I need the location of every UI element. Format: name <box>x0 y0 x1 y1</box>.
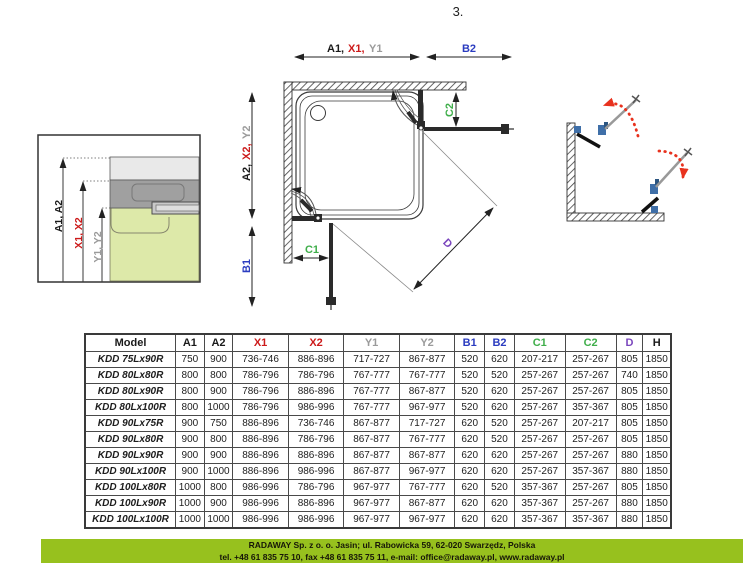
value-cell: 867-877 <box>399 384 455 400</box>
dimensions-table-container: ModelA1A2X1X2Y1Y2B1B2C1C2DHKDD 75Lx90R75… <box>84 333 672 529</box>
value-cell: 786-796 <box>233 384 289 400</box>
value-cell: 520 <box>485 416 515 432</box>
value-cell: 620 <box>455 416 485 432</box>
value-cell: 1850 <box>643 496 671 512</box>
value-cell: 257-267 <box>514 464 565 480</box>
value-cell: 1850 <box>643 352 671 368</box>
value-cell: 900 <box>176 448 205 464</box>
value-cell: 1000 <box>176 512 205 529</box>
value-cell: 880 <box>616 448 643 464</box>
detail-lightgray-layer <box>110 157 199 180</box>
value-cell: 800 <box>204 432 233 448</box>
value-cell: 886-896 <box>288 496 344 512</box>
value-cell: 257-267 <box>565 432 616 448</box>
value-cell: 257-267 <box>565 496 616 512</box>
value-cell: 886-896 <box>233 464 289 480</box>
value-cell: 1850 <box>643 448 671 464</box>
value-cell: 800 <box>204 480 233 496</box>
shower-tray <box>296 92 423 219</box>
value-cell: 900 <box>204 448 233 464</box>
value-cell: 520 <box>485 368 515 384</box>
table-row: KDD 80Lx100R8001000786-796986-996767-777… <box>85 400 671 416</box>
detail-label-a: A1, A2 <box>53 200 65 232</box>
model-cell: KDD 90Lx100R <box>85 464 176 480</box>
value-cell: 620 <box>485 400 515 416</box>
value-cell: 886-896 <box>288 448 344 464</box>
value-cell: 800 <box>176 400 205 416</box>
profile-detail-diagram: A1, A2 X1, X2 Y1, Y2 <box>38 135 200 282</box>
swing-bottom-wall <box>567 213 664 221</box>
value-cell: 867-877 <box>344 448 400 464</box>
value-cell: 1000 <box>204 512 233 529</box>
value-cell: 786-796 <box>288 368 344 384</box>
value-cell: 717-727 <box>344 352 400 368</box>
value-cell: 207-217 <box>565 416 616 432</box>
footer-address: RADAWAY Sp. z o. o. Jasin; ul. Rabowicka… <box>41 540 743 552</box>
value-cell: 886-896 <box>233 448 289 464</box>
value-cell: 1000 <box>176 496 205 512</box>
value-cell: 257-267 <box>514 416 565 432</box>
svg-text:Y2: Y2 <box>241 126 253 139</box>
model-cell: KDD 75Lx90R <box>85 352 176 368</box>
value-cell: 1850 <box>643 512 671 529</box>
swing-bottom-door <box>642 148 692 213</box>
table-row: KDD 90Lx90R900900886-896886-896867-87786… <box>85 448 671 464</box>
value-cell: 257-267 <box>514 368 565 384</box>
value-cell: 786-796 <box>233 400 289 416</box>
value-cell: 967-977 <box>399 400 455 416</box>
value-cell: 620 <box>455 432 485 448</box>
main-plan-diagram: D A1, X1, Y1 B2 A2, X2, Y2 B1 C2 C1 <box>241 43 514 310</box>
column-header-h: H <box>643 334 671 352</box>
dim-c1-label: C1 <box>305 244 319 256</box>
diag-ext-top <box>422 131 497 206</box>
column-header-d: D <box>616 334 643 352</box>
value-cell: 257-267 <box>514 432 565 448</box>
value-cell: 967-977 <box>344 496 400 512</box>
value-cell: 620 <box>455 480 485 496</box>
diag-ext-bottom <box>333 224 413 292</box>
table-row: KDD 90Lx80R900800886-896786-796867-87776… <box>85 432 671 448</box>
value-cell: 786-796 <box>288 432 344 448</box>
value-cell: 1000 <box>176 480 205 496</box>
value-cell: 900 <box>176 416 205 432</box>
value-cell: 886-896 <box>233 432 289 448</box>
column-header-c2: C2 <box>565 334 616 352</box>
value-cell: 805 <box>616 432 643 448</box>
model-cell: KDD 90Lx75R <box>85 416 176 432</box>
value-cell: 767-777 <box>344 368 400 384</box>
technical-diagrams: A1, A2 X1, X2 Y1, Y2 <box>0 0 754 332</box>
value-cell: 767-777 <box>399 368 455 384</box>
value-cell: 986-996 <box>288 512 344 529</box>
value-cell: 805 <box>616 400 643 416</box>
value-cell: 257-267 <box>514 400 565 416</box>
value-cell: 620 <box>485 384 515 400</box>
table-header-row: ModelA1A2X1X2Y1Y2B1B2C1C2DH <box>85 334 671 352</box>
dim-b2-label: B2 <box>462 43 476 55</box>
value-cell: 986-996 <box>233 512 289 529</box>
drain-icon <box>311 106 326 121</box>
model-cell: KDD 80Lx100R <box>85 400 176 416</box>
value-cell: 867-877 <box>344 432 400 448</box>
value-cell: 357-367 <box>565 400 616 416</box>
value-cell: 620 <box>455 512 485 529</box>
value-cell: 867-877 <box>344 416 400 432</box>
table-row: KDD 100Lx90R1000900986-996886-896967-977… <box>85 496 671 512</box>
footer-bar: RADAWAY Sp. z o. o. Jasin; ul. Rabowicka… <box>41 539 743 563</box>
value-cell: 800 <box>204 368 233 384</box>
value-cell: 767-777 <box>344 400 400 416</box>
footer-contact: tel. +48 61 835 75 10, fax +48 61 835 75… <box>41 552 743 564</box>
value-cell: 867-877 <box>344 464 400 480</box>
value-cell: 967-977 <box>399 512 455 529</box>
value-cell: 520 <box>455 352 485 368</box>
value-cell: 986-996 <box>288 400 344 416</box>
value-cell: 357-367 <box>565 464 616 480</box>
value-cell: 800 <box>176 368 205 384</box>
model-cell: KDD 80Lx80R <box>85 368 176 384</box>
table-row: KDD 100Lx80R1000800986-996786-796967-977… <box>85 480 671 496</box>
door-handle-icon <box>632 95 640 103</box>
detail-green-layer <box>110 208 199 281</box>
detail-label-x: X1, X2 <box>73 217 85 249</box>
value-cell: 1000 <box>204 400 233 416</box>
value-cell: 750 <box>204 416 233 432</box>
left-wall <box>284 82 292 263</box>
value-cell: 880 <box>616 496 643 512</box>
value-cell: 620 <box>485 464 515 480</box>
value-cell: 767-777 <box>399 480 455 496</box>
value-cell: 257-267 <box>565 352 616 368</box>
value-cell: 900 <box>204 496 233 512</box>
value-cell: 1000 <box>204 464 233 480</box>
value-cell: 1850 <box>643 480 671 496</box>
value-cell: 520 <box>455 384 485 400</box>
value-cell: 750 <box>176 352 205 368</box>
value-cell: 805 <box>616 384 643 400</box>
value-cell: 357-367 <box>565 512 616 529</box>
column-header-b1: B1 <box>455 334 485 352</box>
column-header-a1: A1 <box>176 334 205 352</box>
value-cell: 886-896 <box>233 416 289 432</box>
value-cell: 867-877 <box>399 448 455 464</box>
value-cell: 805 <box>616 480 643 496</box>
value-cell: 257-267 <box>565 448 616 464</box>
value-cell: 805 <box>616 352 643 368</box>
value-cell: 736-746 <box>233 352 289 368</box>
dim-c2-label: C2 <box>444 103 456 117</box>
value-cell: 900 <box>176 464 205 480</box>
table-row: KDD 80Lx90R800900786-796886-896767-77786… <box>85 384 671 400</box>
column-header-x2: X2 <box>288 334 344 352</box>
dimensions-table: ModelA1A2X1X2Y1Y2B1B2C1C2DHKDD 75Lx90R75… <box>84 333 672 529</box>
value-cell: 867-877 <box>399 352 455 368</box>
dim-d-label: D <box>440 237 454 251</box>
value-cell: 967-977 <box>344 480 400 496</box>
value-cell: 620 <box>485 448 515 464</box>
swing-left-wall <box>567 123 575 215</box>
value-cell: 357-367 <box>514 496 565 512</box>
value-cell: 805 <box>616 416 643 432</box>
detail-label-y: Y1, Y2 <box>92 231 104 262</box>
column-header-y2: Y2 <box>399 334 455 352</box>
detail-profile-tab-inner <box>156 205 199 211</box>
value-cell: 257-267 <box>565 384 616 400</box>
value-cell: 620 <box>485 352 515 368</box>
value-cell: 786-796 <box>288 480 344 496</box>
value-cell: 257-267 <box>565 480 616 496</box>
value-cell: 1850 <box>643 464 671 480</box>
column-header-b2: B2 <box>485 334 515 352</box>
dim-left-label: A2, X2, Y2 <box>241 126 253 181</box>
datasheet-page: 3. <box>0 0 754 570</box>
value-cell: 520 <box>485 432 515 448</box>
model-cell: KDD 100Lx90R <box>85 496 176 512</box>
value-cell: 986-996 <box>233 496 289 512</box>
model-cell: KDD 90Lx90R <box>85 448 176 464</box>
svg-text:A1,: A1, <box>327 43 344 55</box>
table-row: KDD 90Lx100R9001000886-896986-996867-877… <box>85 464 671 480</box>
value-cell: 900 <box>204 352 233 368</box>
value-cell: 986-996 <box>288 464 344 480</box>
value-cell: 257-267 <box>565 368 616 384</box>
value-cell: 620 <box>455 464 485 480</box>
value-cell: 357-367 <box>514 512 565 529</box>
svg-text:A2,: A2, <box>241 164 253 181</box>
value-cell: 986-996 <box>233 480 289 496</box>
value-cell: 867-877 <box>399 496 455 512</box>
value-cell: 357-367 <box>514 480 565 496</box>
value-cell: 1850 <box>643 432 671 448</box>
value-cell: 740 <box>616 368 643 384</box>
value-cell: 880 <box>616 512 643 529</box>
value-cell: 520 <box>455 400 485 416</box>
table-row: KDD 90Lx75R900750886-896736-746867-87771… <box>85 416 671 432</box>
value-cell: 736-746 <box>288 416 344 432</box>
value-cell: 520 <box>485 480 515 496</box>
door-swing-diagram <box>567 95 692 221</box>
value-cell: 880 <box>616 464 643 480</box>
value-cell: 620 <box>485 496 515 512</box>
svg-text:X1,: X1, <box>348 43 365 55</box>
value-cell: 257-267 <box>514 384 565 400</box>
value-cell: 786-796 <box>233 368 289 384</box>
svg-text:X2,: X2, <box>241 143 253 160</box>
value-cell: 1850 <box>643 384 671 400</box>
model-cell: KDD 80Lx90R <box>85 384 176 400</box>
column-header-y1: Y1 <box>344 334 400 352</box>
value-cell: 620 <box>455 496 485 512</box>
value-cell: 886-896 <box>288 384 344 400</box>
dim-top-label: A1, X1, Y1 <box>327 43 382 55</box>
column-header-c1: C1 <box>514 334 565 352</box>
column-header-a2: A2 <box>204 334 233 352</box>
value-cell: 967-977 <box>399 464 455 480</box>
column-header-x1: X1 <box>233 334 289 352</box>
model-cell: KDD 100Lx100R <box>85 512 176 529</box>
table-row: KDD 100Lx100R10001000986-996986-996967-9… <box>85 512 671 529</box>
value-cell: 900 <box>204 384 233 400</box>
value-cell: 767-777 <box>399 432 455 448</box>
swing-arrow-bottom <box>659 151 683 177</box>
table-row: KDD 75Lx90R750900736-746886-896717-72786… <box>85 352 671 368</box>
column-header-model: Model <box>85 334 176 352</box>
dim-b1-label: B1 <box>241 259 253 273</box>
top-wall <box>284 82 466 90</box>
value-cell: 900 <box>176 432 205 448</box>
value-cell: 967-977 <box>344 512 400 529</box>
value-cell: 257-267 <box>514 448 565 464</box>
model-cell: KDD 100Lx80R <box>85 480 176 496</box>
swing-top-door <box>574 95 640 147</box>
value-cell: 1850 <box>643 400 671 416</box>
value-cell: 800 <box>176 384 205 400</box>
value-cell: 620 <box>485 512 515 529</box>
value-cell: 1850 <box>643 368 671 384</box>
swing-arrow-top <box>605 104 638 136</box>
value-cell: 886-896 <box>288 352 344 368</box>
dim-d-line <box>414 208 493 289</box>
value-cell: 520 <box>455 368 485 384</box>
model-cell: KDD 90Lx80R <box>85 432 176 448</box>
door-handle-icon <box>684 148 692 156</box>
value-cell: 620 <box>455 448 485 464</box>
svg-text:Y1: Y1 <box>369 43 382 55</box>
table-row: KDD 80Lx80R800800786-796786-796767-77776… <box>85 368 671 384</box>
value-cell: 717-727 <box>399 416 455 432</box>
value-cell: 767-777 <box>344 384 400 400</box>
value-cell: 207-217 <box>514 352 565 368</box>
value-cell: 1850 <box>643 416 671 432</box>
